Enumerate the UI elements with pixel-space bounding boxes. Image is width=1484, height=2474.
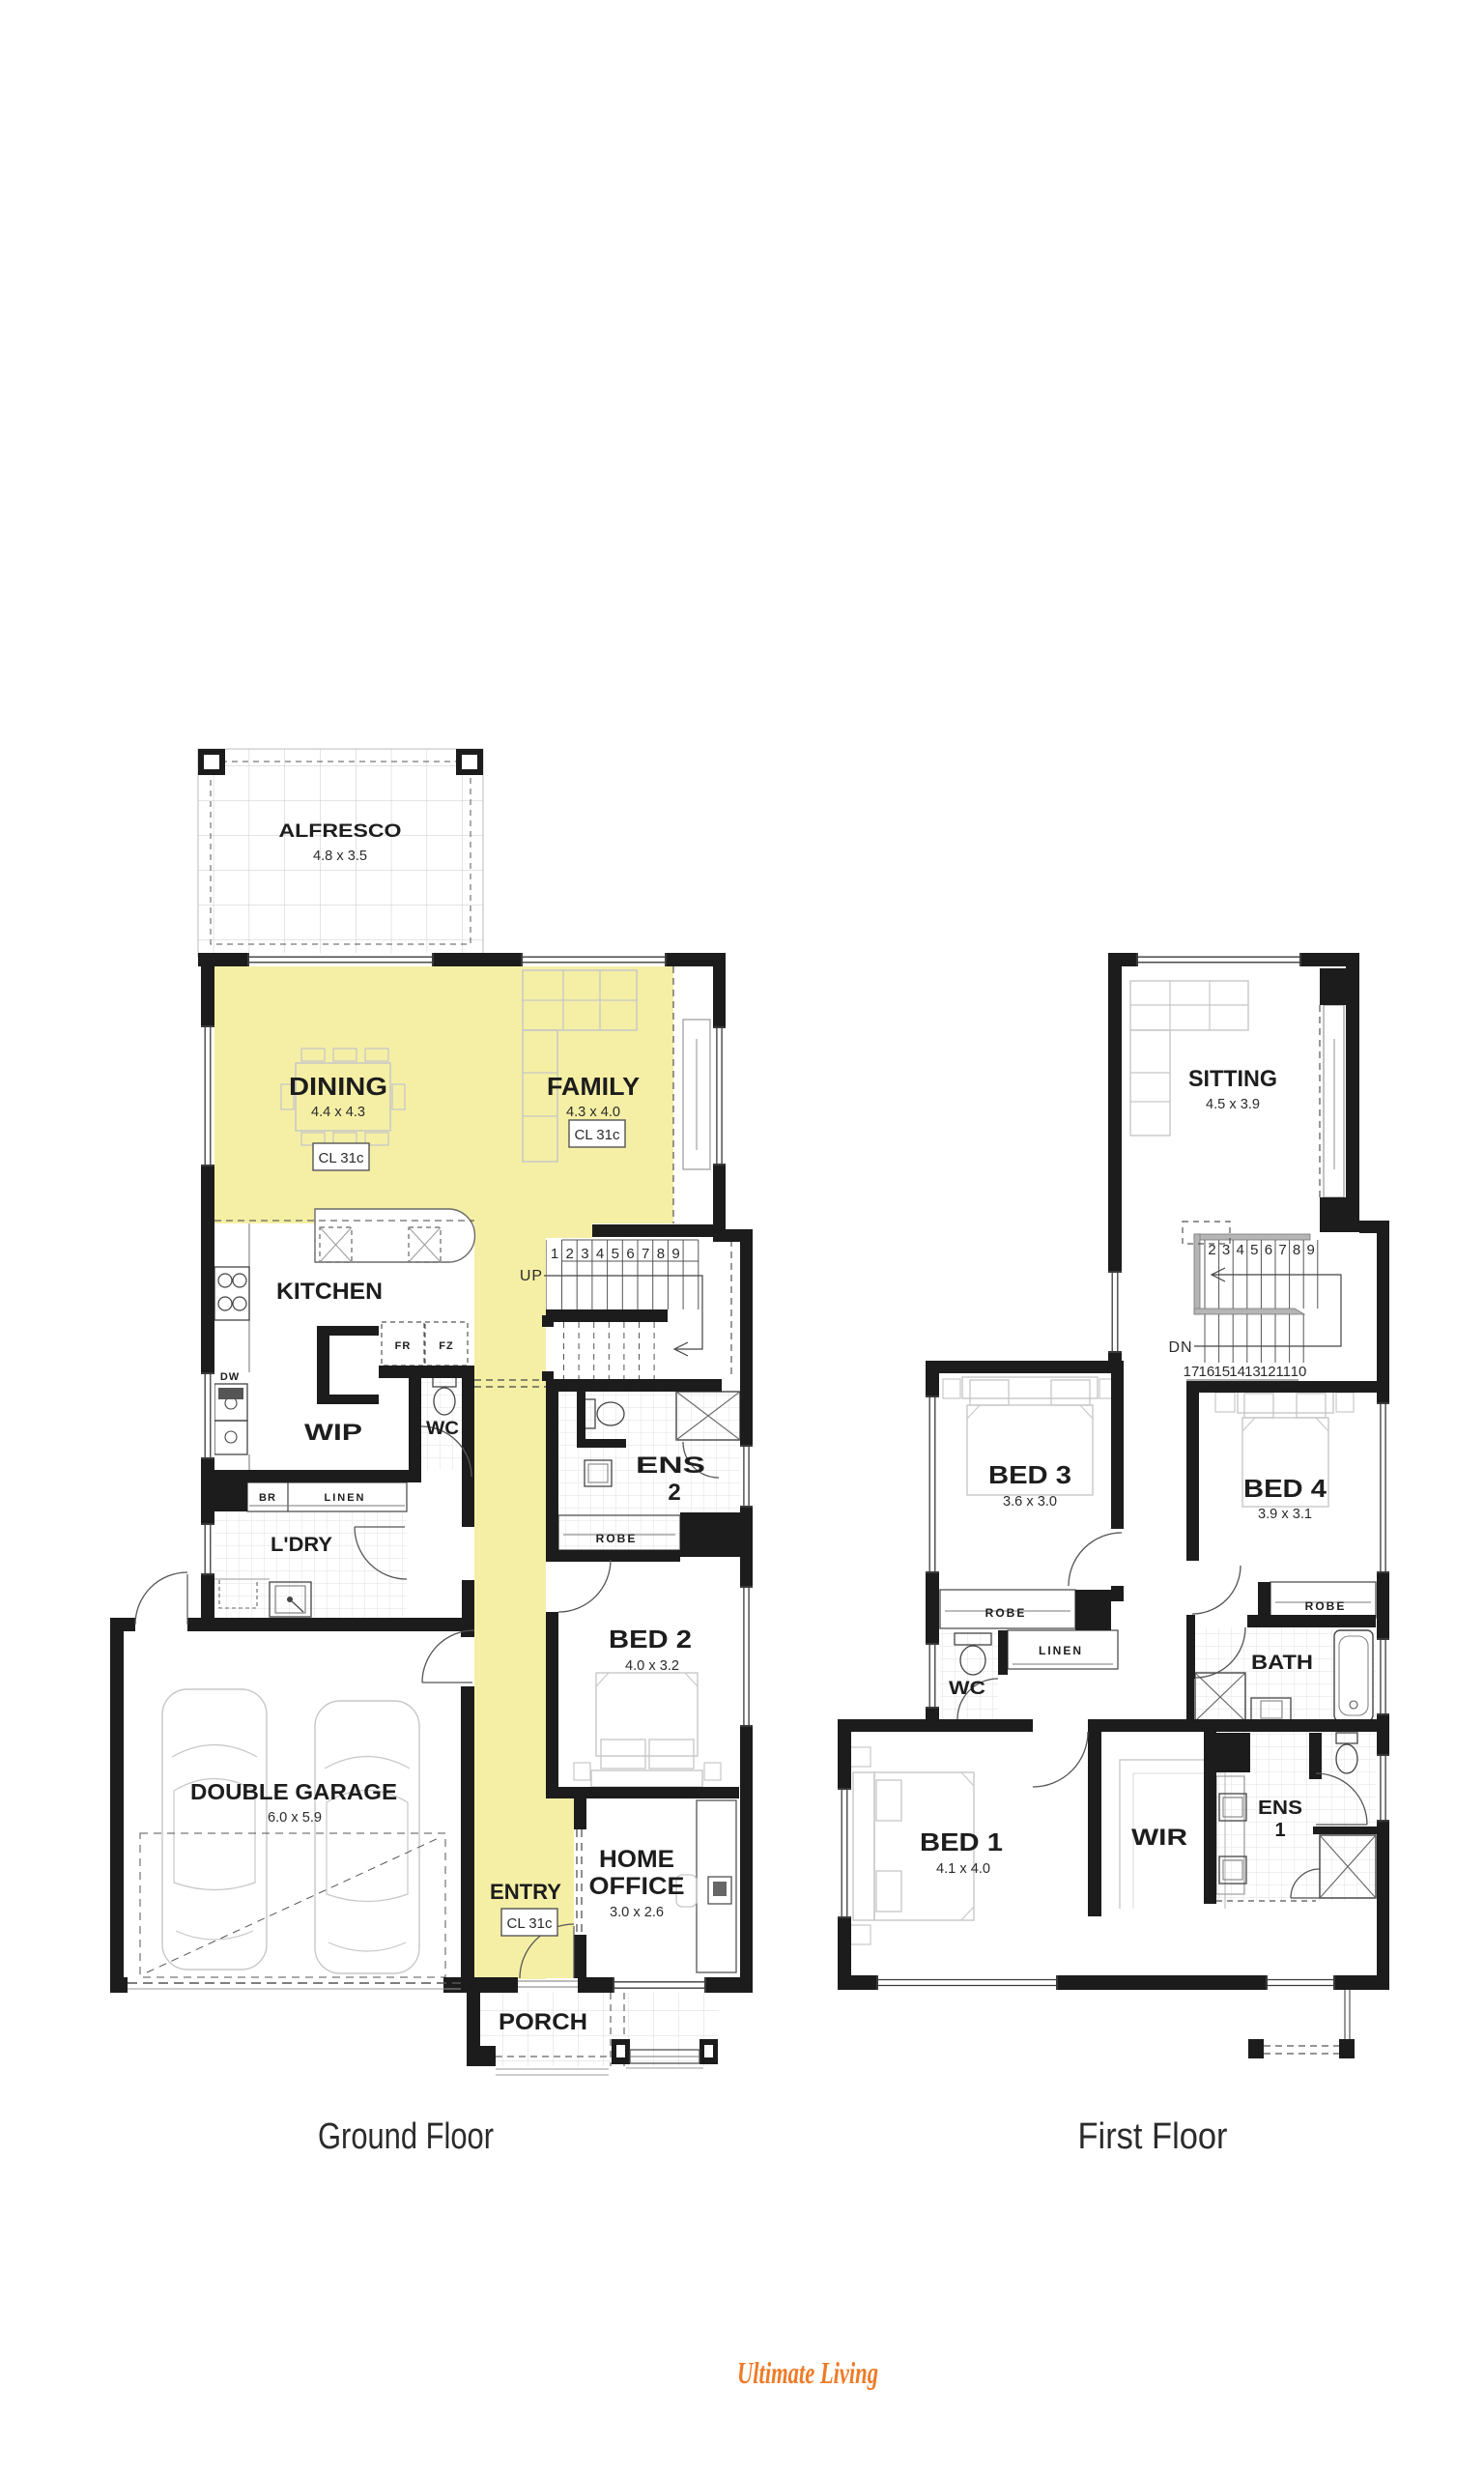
svg-text:WC: WC (426, 1419, 459, 1439)
svg-text:ROBE: ROBE (596, 1532, 638, 1545)
svg-text:KITCHEN: KITCHEN (276, 1279, 383, 1305)
svg-text:WIP: WIP (304, 1420, 362, 1446)
svg-text:First Floor: First Floor (1078, 2116, 1228, 2157)
svg-text:5: 5 (1250, 1242, 1258, 1258)
svg-text:DOUBLE GARAGE: DOUBLE GARAGE (190, 1779, 397, 1804)
svg-text:HOME: HOME (599, 1846, 674, 1873)
svg-text:BED 4: BED 4 (1243, 1474, 1327, 1503)
svg-text:2: 2 (668, 1480, 680, 1506)
svg-text:DN: DN (1168, 1339, 1192, 1356)
svg-text:LINEN: LINEN (1039, 1644, 1083, 1657)
svg-text:13: 13 (1244, 1364, 1261, 1380)
svg-text:ENTRY: ENTRY (490, 1880, 561, 1904)
svg-text:Ground Floor: Ground Floor (318, 2116, 494, 2157)
svg-text:4.3 x 4.0: 4.3 x 4.0 (566, 1104, 620, 1120)
svg-text:CL 31c: CL 31c (575, 1127, 620, 1143)
svg-text:17: 17 (1184, 1364, 1200, 1380)
svg-text:ROBE: ROBE (1305, 1599, 1347, 1613)
svg-text:1: 1 (1274, 1820, 1285, 1841)
svg-text:3.9 x 3.1: 3.9 x 3.1 (1258, 1506, 1312, 1522)
svg-text:6: 6 (1265, 1242, 1272, 1258)
svg-text:OFFICE: OFFICE (589, 1873, 685, 1900)
svg-text:FZ: FZ (439, 1340, 453, 1352)
svg-text:ROBE: ROBE (985, 1606, 1027, 1620)
svg-text:9: 9 (671, 1246, 679, 1262)
svg-text:DINING: DINING (289, 1072, 387, 1101)
svg-text:15: 15 (1213, 1364, 1230, 1380)
svg-text:9: 9 (1307, 1242, 1315, 1258)
svg-text:11: 11 (1275, 1364, 1291, 1380)
svg-text:PORCH: PORCH (499, 2009, 587, 2035)
svg-text:CL 31c: CL 31c (507, 1915, 553, 1932)
svg-text:6.0 x 5.9: 6.0 x 5.9 (268, 1809, 322, 1826)
svg-text:ENS: ENS (636, 1453, 705, 1479)
svg-text:UP: UP (520, 1268, 543, 1284)
svg-text:FAMILY: FAMILY (547, 1072, 640, 1101)
svg-text:4.0 x 3.2: 4.0 x 3.2 (625, 1657, 679, 1674)
svg-text:BED 1: BED 1 (920, 1827, 1003, 1856)
svg-text:7: 7 (1278, 1242, 1286, 1258)
svg-text:7: 7 (642, 1246, 649, 1262)
svg-text:WIR: WIR (1131, 1825, 1187, 1851)
svg-text:4: 4 (1237, 1242, 1244, 1258)
svg-text:8: 8 (1293, 1242, 1300, 1258)
svg-text:8: 8 (657, 1246, 665, 1262)
svg-text:Ultimate Living: Ultimate Living (737, 2355, 878, 2390)
svg-text:1: 1 (551, 1246, 558, 1262)
svg-text:4: 4 (596, 1246, 604, 1262)
svg-text:6: 6 (626, 1246, 634, 1262)
svg-text:3: 3 (581, 1246, 588, 1262)
svg-text:4.5 x 3.9: 4.5 x 3.9 (1206, 1096, 1260, 1112)
svg-text:CL 31c: CL 31c (319, 1150, 364, 1166)
svg-text:3.6 x 3.0: 3.6 x 3.0 (1003, 1493, 1057, 1510)
svg-text:3.0 x 2.6: 3.0 x 2.6 (610, 1904, 664, 1920)
svg-text:BED 2: BED 2 (609, 1625, 692, 1654)
svg-text:LINEN: LINEN (325, 1492, 366, 1504)
svg-text:DW: DW (220, 1371, 240, 1383)
svg-text:4.1 x 4.0: 4.1 x 4.0 (936, 1860, 990, 1877)
svg-text:SITTING: SITTING (1188, 1066, 1277, 1092)
svg-text:WC: WC (949, 1679, 985, 1699)
svg-text:12: 12 (1260, 1364, 1276, 1380)
svg-text:BR: BR (259, 1492, 276, 1504)
svg-text:ENS: ENS (1258, 1798, 1302, 1819)
svg-text:FR: FR (395, 1340, 412, 1352)
svg-text:14: 14 (1229, 1364, 1245, 1380)
svg-text:4.4 x 4.3: 4.4 x 4.3 (311, 1104, 365, 1120)
svg-text:BATH: BATH (1251, 1652, 1313, 1674)
svg-text:16: 16 (1199, 1364, 1215, 1380)
svg-text:2: 2 (566, 1246, 574, 1262)
svg-text:4.8 x 3.5: 4.8 x 3.5 (313, 848, 367, 864)
svg-text:BED 3: BED 3 (988, 1460, 1071, 1489)
svg-text:5: 5 (612, 1246, 619, 1262)
svg-text:L'DRY: L'DRY (271, 1534, 332, 1556)
svg-text:10: 10 (1291, 1364, 1307, 1380)
svg-text:ALFRESCO: ALFRESCO (279, 821, 402, 842)
